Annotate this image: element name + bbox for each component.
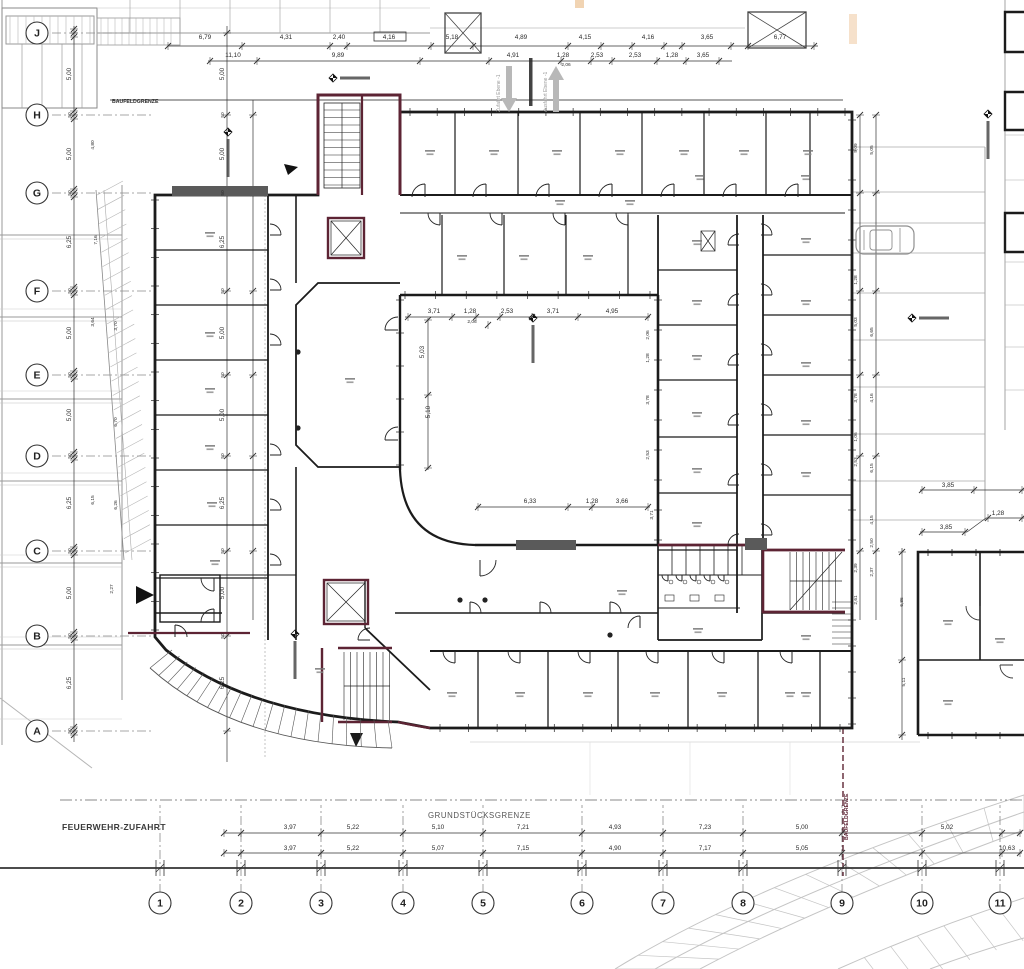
- dimension-label: 6,33: [524, 498, 537, 505]
- dimension-label: 50: [67, 372, 73, 378]
- grid-bubble-label: H: [33, 110, 41, 122]
- dimension-label: 50: [67, 728, 73, 734]
- dimension-label: 4,91: [507, 52, 520, 59]
- dimension-label: 5,22: [347, 824, 360, 831]
- dimension-label: 2,53: [591, 52, 604, 59]
- dimension-label: 6,25: [219, 235, 226, 248]
- ramp-out-label: Ausfahrt Ebene -1: [543, 71, 549, 112]
- dimension-label: 7,15: [517, 845, 530, 852]
- dimension-label: 5,10: [425, 405, 432, 418]
- dimension-label: 2,53: [501, 308, 514, 315]
- grid-bubble-label: 1: [157, 898, 163, 910]
- dimension-label: 4,93: [609, 824, 622, 831]
- grid-bubble-label: D: [33, 451, 41, 463]
- symbols: [136, 58, 992, 679]
- grundstuecksgrenze-label: GRUNDSTÜCKSGRENZE: [428, 811, 531, 820]
- dimension-label: 1,06: [853, 432, 859, 442]
- car-icon: [856, 226, 914, 254]
- grid-bubble-col-1: 1: [149, 892, 171, 914]
- dimension-label: 5,00: [219, 586, 226, 599]
- dimension-label: 1,28: [586, 498, 599, 505]
- dimension-label: 5,00: [66, 326, 73, 339]
- dimension-label: 50: [67, 112, 73, 118]
- dimension-label: 5,05: [869, 145, 875, 155]
- dimension-label: 5,00: [219, 147, 226, 160]
- dimension-label: 6,25: [66, 676, 73, 689]
- dimension-label: 5,22: [347, 845, 360, 852]
- dimension-label: 3,78: [645, 395, 651, 405]
- dimension-label: 5,03: [419, 345, 426, 358]
- grid-bubble-col-5: 5: [472, 892, 494, 914]
- dimension-label: 6,15: [869, 463, 875, 473]
- dimension-label: 5,07: [432, 845, 445, 852]
- dimension-label: 2,37: [869, 567, 875, 577]
- dimension-label: 3,65: [697, 52, 710, 59]
- dimension-label: 6,86: [899, 597, 905, 607]
- grid-bubble-row-D: D: [26, 445, 48, 467]
- dimension-label: 50: [67, 548, 73, 554]
- dimension-label: 5,00: [219, 408, 226, 421]
- dimension-label: 11,10: [225, 52, 241, 59]
- floorplan-sheet: 6,794,312,404,165,184,894,154,163,656,77…: [0, 0, 1024, 969]
- dimension-label: 2,53: [853, 457, 859, 467]
- dimension-label: 3,70: [113, 321, 119, 331]
- dimension-label: 1,28: [666, 52, 679, 59]
- grid-bubble-label: C: [33, 546, 41, 558]
- grid-bubble-col-10: 10: [911, 892, 933, 914]
- dimension-label: 2,50: [869, 538, 875, 548]
- dimension-label: 50: [220, 453, 226, 459]
- dimension-label: 2,53: [645, 450, 651, 460]
- dimension-label: 50: [220, 288, 226, 294]
- dimension-label: 2,39: [853, 563, 859, 573]
- dimension-label: 9,89: [332, 52, 345, 59]
- dimension-label: 50: [220, 548, 226, 554]
- dimension-label: 3,71: [547, 308, 560, 315]
- dimension-label: 6,25: [219, 496, 226, 509]
- grid-lines: [52, 33, 1024, 893]
- grid-bubble-label: 10: [916, 898, 928, 910]
- dimension-label: 5,00: [66, 586, 73, 599]
- dimension-label: 3,85: [940, 524, 953, 531]
- grid-bubble-row-C: C: [26, 540, 48, 562]
- dimension-label: 3,97: [284, 824, 297, 831]
- dimension-label: 50: [220, 112, 226, 118]
- dimension-label: 6,25: [219, 676, 226, 689]
- dimension-label: 5,10: [432, 824, 445, 831]
- dimension-label: 50: [67, 190, 73, 196]
- dimension-label: 3,97: [284, 845, 297, 852]
- grid-bubble-label: 8: [740, 898, 746, 910]
- feuerwehr-zufahrt-label: FEUERWEHR-ZUFAHRT: [62, 822, 166, 832]
- ramp-down-arrow-icon: [501, 66, 517, 112]
- grid-bubble-col-7: 7: [652, 892, 674, 914]
- dimension-label: 3,85: [942, 482, 955, 489]
- dimension-label: 1,28: [992, 510, 1005, 517]
- dimension-label: 4,16: [869, 393, 875, 403]
- dimension-label: 2,06: [467, 319, 477, 325]
- dimension-label: 50: [220, 372, 226, 378]
- dimension-label: 50: [67, 453, 73, 459]
- dimension-label: 5,00: [66, 408, 73, 421]
- ramp-note-text-block: [529, 58, 533, 106]
- dimension-label: 1,28: [464, 308, 477, 315]
- grid-bubble-col-11: 11: [989, 892, 1011, 914]
- grid-bubble-col-9: 9: [831, 892, 853, 914]
- grid-bubble-label: 7: [660, 898, 666, 910]
- dimension-label: 2,40: [333, 34, 346, 41]
- dimension-label: 5,09: [853, 143, 859, 153]
- dimension-label: 1,28: [557, 52, 570, 59]
- ramp-up-arrow-icon: [548, 66, 564, 112]
- dimension-label: 2,06: [561, 62, 571, 68]
- level-marker-icon: [908, 314, 949, 322]
- grid-bubble-col-6: 6: [571, 892, 593, 914]
- grid-bubble-label: F: [34, 286, 41, 298]
- grid-bubble-label: 2: [238, 898, 244, 910]
- dimension-label: 7,21: [517, 824, 530, 831]
- dimension-label: 7,16: [93, 235, 99, 245]
- dimension-label: 5,00: [219, 326, 226, 339]
- dimension-label: 6,65: [869, 327, 875, 337]
- dimension-label: 5,11: [901, 677, 907, 686]
- dimension-label: 4,90: [609, 845, 622, 852]
- dimension-label: 3,66: [616, 498, 629, 505]
- grid-bubble-row-J: J: [26, 22, 48, 44]
- dimension-label: 5,03: [853, 317, 859, 327]
- dimension-label: 6,15: [90, 495, 96, 505]
- grid-bubble-col-4: 4: [392, 892, 414, 914]
- dimension-label: 4,80: [90, 140, 96, 150]
- dimension-label: 6,79: [199, 34, 212, 41]
- dimension-label: 3,78: [853, 393, 859, 403]
- grid-bubble-row-G: G: [26, 182, 48, 204]
- dimension-label: 4,89: [515, 34, 528, 41]
- grid-bubble-label: 6: [579, 898, 585, 910]
- grid-bubble-row-A: A: [26, 720, 48, 742]
- dimension-label: 2,53: [629, 52, 642, 59]
- dimension-label: 2,61: [853, 595, 859, 605]
- grid-bubble-label: 11: [994, 898, 1005, 910]
- grid-bubble-row-F: F: [26, 280, 48, 302]
- baufeldgrenze-right-label: BAUFELDGRENZE: [844, 793, 850, 840]
- dimension-label: 4,16: [383, 34, 396, 41]
- baufeldgrenze-top-label: BAUFELDGRENZE: [112, 99, 159, 105]
- dimension-label: 5,00: [219, 67, 226, 80]
- grid-bubble-label: J: [34, 28, 40, 40]
- dimension-label: 6,25: [66, 235, 73, 248]
- level-marker-icon: [291, 630, 299, 679]
- dimension-label: 4,15: [579, 34, 592, 41]
- dimension-label: 3,71: [428, 308, 441, 315]
- dimension-label: 5,02: [941, 824, 954, 831]
- grid-bubble-label: G: [33, 188, 41, 200]
- grid-bubble-row-E: E: [26, 364, 48, 386]
- floorplan-drawing: 6,794,312,404,165,184,894,154,163,656,77…: [0, 0, 1024, 969]
- grid-bubble-col-2: 2: [230, 892, 252, 914]
- dimension-label: 1,28: [853, 275, 859, 285]
- dimension-label: 6,77: [774, 34, 787, 41]
- grid-bubble-label: E: [33, 370, 40, 382]
- dimension-label: 4,15: [869, 515, 875, 525]
- grid-bubble-label: 9: [839, 898, 845, 910]
- dimension-label: 6,70: [113, 417, 119, 427]
- dimension-label: 5,00: [66, 147, 73, 160]
- grid-bubble-col-3: 3: [310, 892, 332, 914]
- grid-bubble-label: B: [33, 631, 41, 643]
- grid-bubble-row-B: B: [26, 625, 48, 647]
- dimension-label: 4,31: [280, 34, 293, 41]
- dimension-label: 4,95: [606, 308, 619, 315]
- dimension-label: 5,00: [66, 67, 73, 80]
- dimension-label: 6,25: [66, 496, 73, 509]
- grid-bubble-col-8: 8: [732, 892, 754, 914]
- level-marker-icon: [529, 314, 537, 363]
- grid-bubble-row-H: H: [26, 104, 48, 126]
- dimension-label: 50: [220, 190, 226, 196]
- grid-bubble-label: A: [33, 726, 41, 738]
- dimension-label: 50: [67, 288, 73, 294]
- dimension-label: 6,26: [113, 500, 119, 510]
- grid-bubble-label: 3: [318, 898, 324, 910]
- curved-road: [615, 795, 1024, 969]
- dimension-label: 10,63: [999, 845, 1015, 852]
- dimension-label: 3,64: [90, 317, 96, 327]
- grid-bubble-label: 5: [480, 898, 486, 910]
- dimension-label: 3,71: [649, 510, 655, 520]
- dimension-label: 1,28: [645, 353, 651, 363]
- dimension-label: 50: [67, 633, 73, 639]
- level-marker-icon: [329, 74, 370, 82]
- north-triangle-icon: [284, 164, 298, 175]
- grid-bubble-label: 4: [400, 898, 406, 910]
- dimension-label: 5,18: [446, 34, 459, 41]
- dimension-label: 7,17: [699, 845, 712, 852]
- dimension-label: 5,05: [796, 845, 809, 852]
- dimension-label: 5,00: [796, 824, 809, 831]
- ramp-in-label: Zufahrt Ebene -1: [496, 74, 502, 112]
- dimension-label: 50: [220, 633, 226, 639]
- dimension-label: 4,16: [642, 34, 655, 41]
- dimension-label: 2,27: [109, 584, 115, 594]
- dimension-label: 2,06: [645, 330, 651, 340]
- dimension-label: 3,65: [701, 34, 714, 41]
- dimension-label: 7,23: [699, 824, 712, 831]
